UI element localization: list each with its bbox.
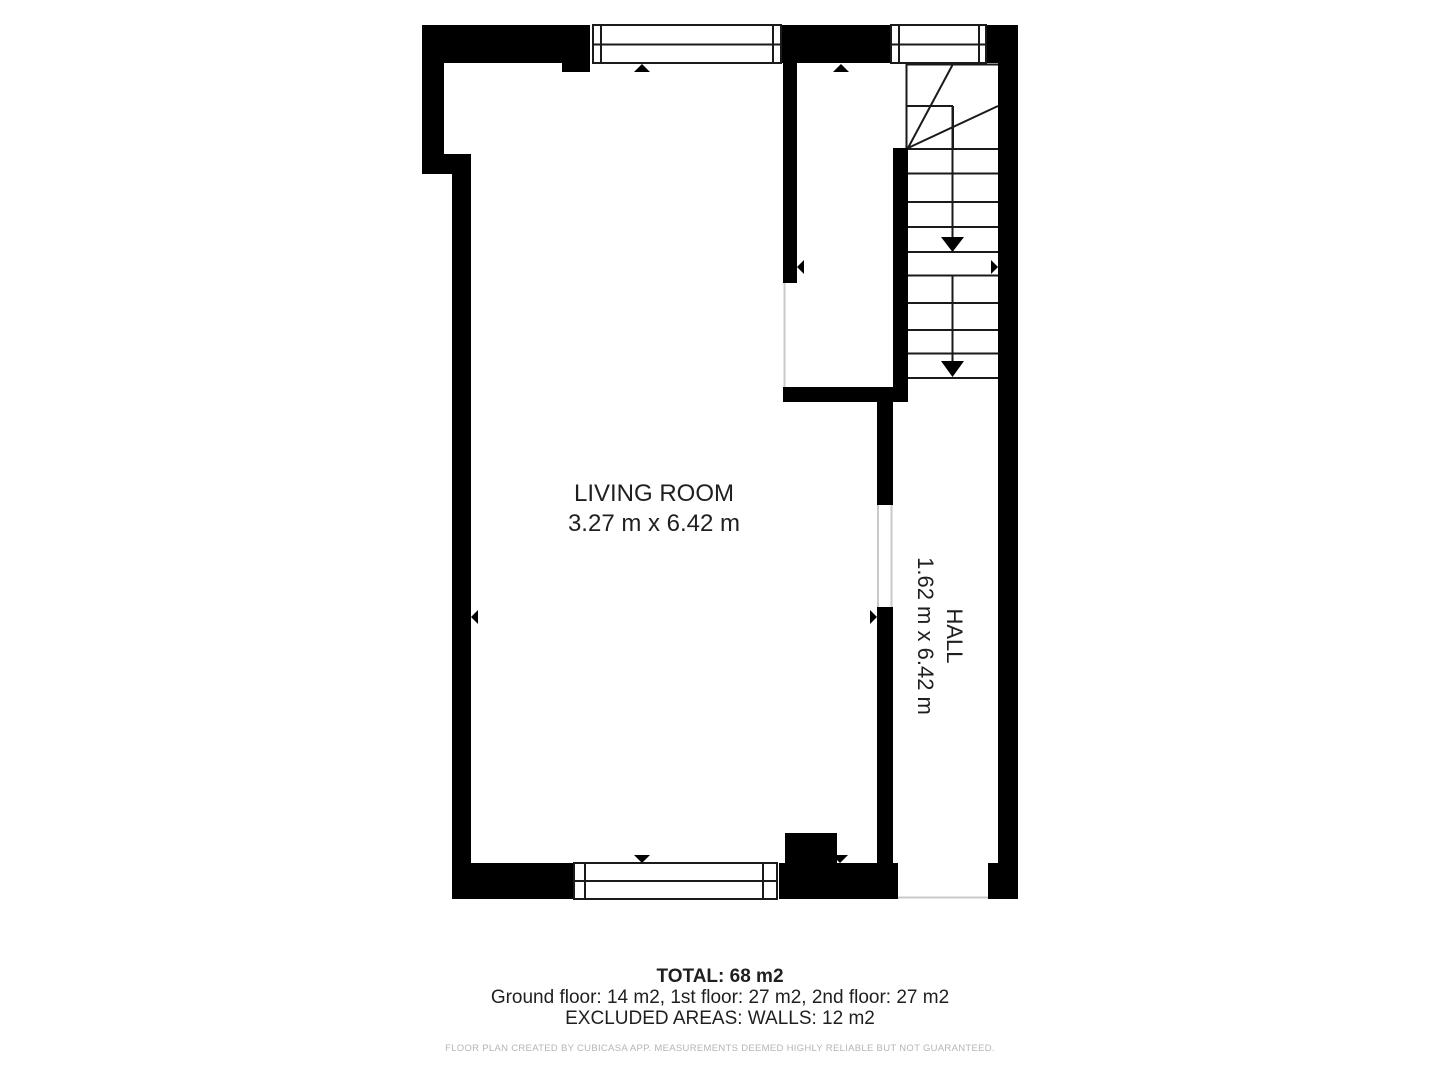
wall-left-step [422,154,471,174]
window-top-living-room [593,25,781,63]
disclaimer-text: FLOOR PLAN CREATED BY CUBICASA APP. MEAS… [0,1043,1440,1055]
wall-top-notch [562,63,590,72]
room-name: HALL [940,557,969,715]
wall-top-middle [781,25,891,63]
floor-plan-drawing [0,0,1440,1080]
window-bottom-living-room [574,863,777,899]
measure-marker-left-icon [471,610,478,624]
staircase [906,64,998,378]
floor-breakdown: Ground floor: 14 m2, 1st floor: 27 m2, 2… [0,987,1440,1008]
measure-marker-right-icon [991,260,998,274]
wall-bottom-middle [779,863,898,899]
wall-top-left [422,25,590,63]
window-top-stairwell [891,25,986,63]
measure-marker-down-icon [634,855,650,863]
arrow-head-down-icon [941,237,964,252]
wall-interior-upper [783,63,797,283]
living-room-label: LIVING ROOM 3.27 m x 6.42 m [568,479,740,539]
wall-stair-left [893,148,908,402]
wall-left-lower [452,174,471,863]
measure-marker-up-icon [833,64,849,72]
excluded-areas: EXCLUDED AREAS: WALLS: 12 m2 [0,1008,1440,1029]
wall-right [998,25,1018,899]
measure-marker-right-icon [870,610,877,624]
room-dimensions: 3.27 m x 6.42 m [568,509,740,539]
measure-marker-left-icon [797,260,804,274]
room-dimensions: 1.62 m x 6.42 m [911,557,940,715]
area-summary: TOTAL: 68 m2 Ground floor: 14 m2, 1st fl… [0,966,1440,1055]
fireplace-block [785,833,837,863]
wall-vestibule-bottom [783,387,908,402]
floor-plan-page: LIVING ROOM 3.27 m x 6.42 m HALL 1.62 m … [0,0,1440,1080]
stair-direction-arrow-upper [941,106,964,252]
measurement-markers [471,64,998,863]
wall-bottom-left [452,863,574,899]
hall-label: HALL 1.62 m x 6.42 m [911,557,969,715]
total-area: TOTAL: 68 m2 [0,966,1440,987]
walls [422,25,1018,899]
stair-direction-arrow-lower [941,276,964,377]
wall-interior-lower-lower-part [877,607,893,863]
wall-left-upper [422,25,444,156]
measure-marker-up-icon [634,64,650,72]
arrow-head-down-icon [941,361,964,377]
wall-interior-lower-upper-part [877,402,893,505]
room-name: LIVING ROOM [568,479,740,509]
